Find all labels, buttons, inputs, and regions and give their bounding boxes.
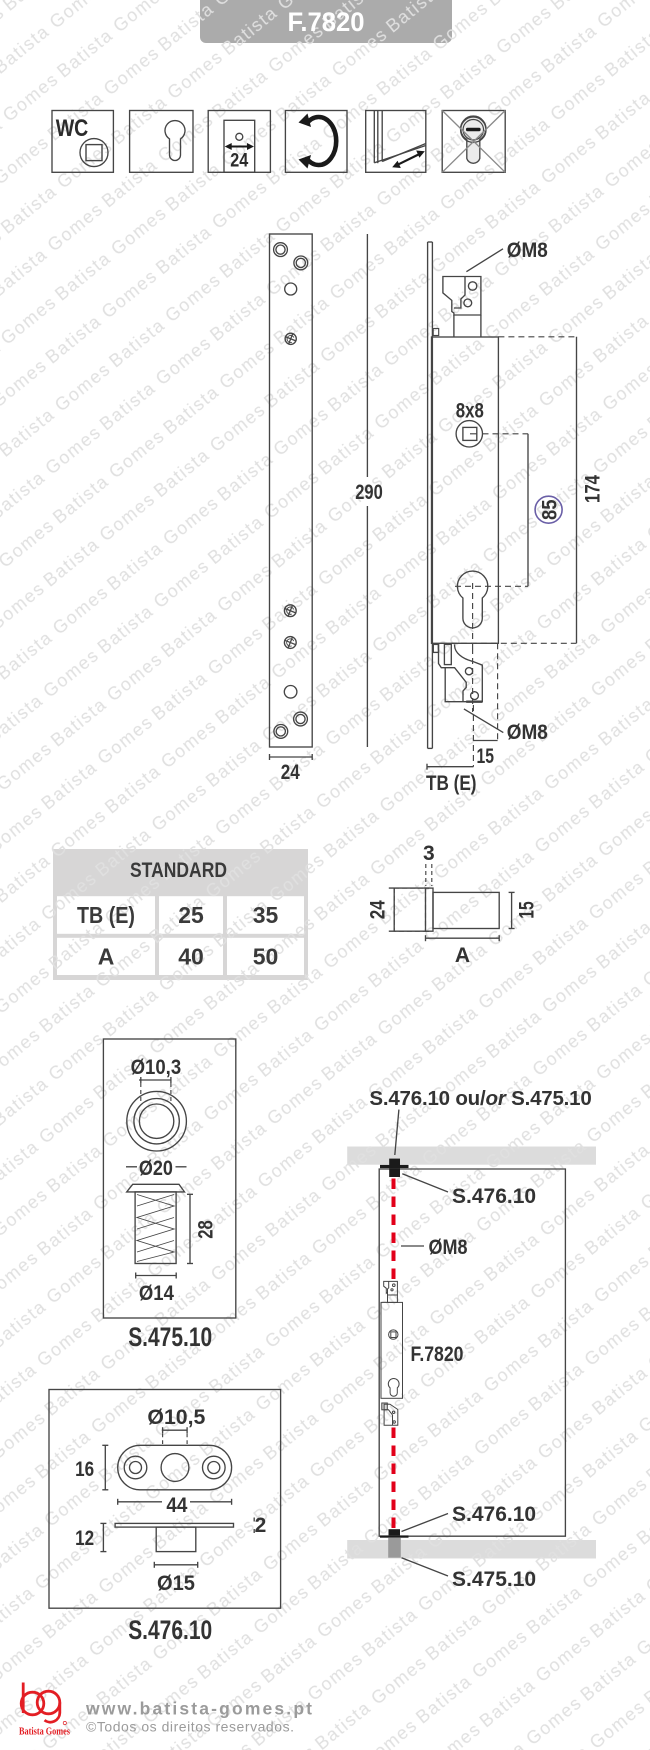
svg-text:S.476.10: S.476.10 xyxy=(452,1185,536,1208)
svg-text:ØM8: ØM8 xyxy=(429,1236,468,1259)
svg-text:A: A xyxy=(98,944,115,970)
svg-text:Batista Gomes: Batista Gomes xyxy=(19,1727,70,1738)
svg-text:85: 85 xyxy=(538,499,561,520)
svg-text:Ø10,5: Ø10,5 xyxy=(147,1406,205,1429)
svg-text:TB (E): TB (E) xyxy=(77,902,135,928)
svg-text:50: 50 xyxy=(253,944,279,970)
svg-text:S.475.10: S.475.10 xyxy=(128,1322,212,1352)
svg-text:©Todos os direitos reservados.: ©Todos os direitos reservados. xyxy=(86,1719,294,1735)
svg-text:3: 3 xyxy=(423,842,435,865)
svg-text:ØM8: ØM8 xyxy=(507,721,548,744)
svg-text:TB (E): TB (E) xyxy=(426,772,477,795)
svg-text:12: 12 xyxy=(75,1527,94,1550)
svg-text:290: 290 xyxy=(355,481,383,504)
svg-text:Ø14: Ø14 xyxy=(139,1282,174,1305)
svg-text:24: 24 xyxy=(281,761,300,784)
svg-text:F.7820: F.7820 xyxy=(288,7,365,37)
svg-text:Ø15: Ø15 xyxy=(157,1572,195,1595)
svg-text:28: 28 xyxy=(195,1220,218,1239)
svg-text:16: 16 xyxy=(75,1458,94,1481)
svg-text:2: 2 xyxy=(255,1514,267,1537)
svg-text:www.batista-gomes.pt: www.batista-gomes.pt xyxy=(85,1699,312,1719)
svg-text:S.476.10 ou/or S.475.10: S.476.10 ou/or S.475.10 xyxy=(369,1087,591,1110)
svg-text:44: 44 xyxy=(166,1494,187,1517)
svg-text:WC: WC xyxy=(56,115,89,142)
svg-text:24: 24 xyxy=(367,900,390,919)
svg-text:S.476.10: S.476.10 xyxy=(128,1615,212,1645)
svg-text:15: 15 xyxy=(516,901,539,919)
svg-text:S.476.10: S.476.10 xyxy=(452,1503,536,1526)
svg-text:Ø20: Ø20 xyxy=(139,1157,173,1180)
svg-text:Ø10,3: Ø10,3 xyxy=(131,1056,182,1079)
svg-text:40: 40 xyxy=(178,944,204,970)
svg-text:STANDARD: STANDARD xyxy=(130,859,227,882)
svg-text:15: 15 xyxy=(476,745,494,768)
svg-text:ØM8: ØM8 xyxy=(507,239,548,262)
svg-text:174: 174 xyxy=(582,475,605,503)
svg-text:8x8: 8x8 xyxy=(456,400,484,423)
svg-text:24: 24 xyxy=(230,151,248,172)
svg-text:35: 35 xyxy=(253,902,279,928)
svg-text:S.475.10: S.475.10 xyxy=(452,1568,536,1591)
svg-text:F.7820: F.7820 xyxy=(411,1343,464,1366)
svg-text:25: 25 xyxy=(178,902,204,928)
svg-text:A: A xyxy=(455,944,470,967)
